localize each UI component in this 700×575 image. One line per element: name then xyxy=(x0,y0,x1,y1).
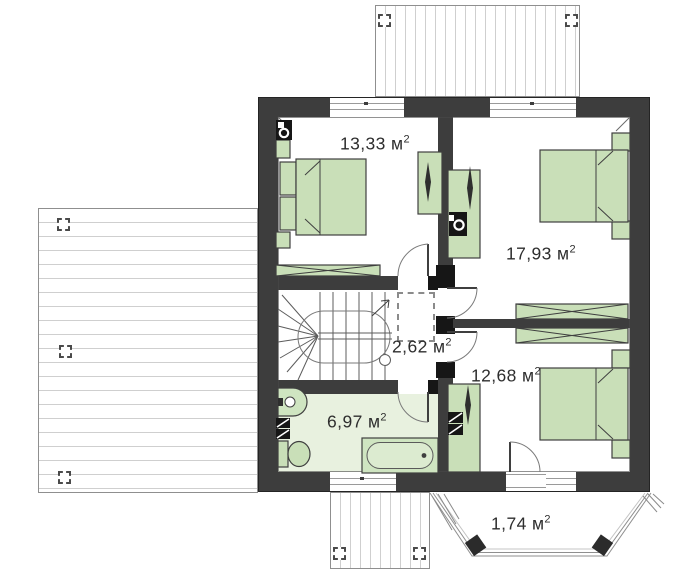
door-bedroom2 xyxy=(447,288,477,318)
area-label-bedroom-right: 17,93 м2 xyxy=(506,244,576,265)
sink-icon xyxy=(278,388,307,416)
chimney-icon xyxy=(449,212,467,236)
door-bathroom xyxy=(398,392,428,422)
bedroom3-furniture xyxy=(448,328,630,472)
toilet-icon xyxy=(278,441,310,467)
area-label-bay-balcony: 1,74 м2 xyxy=(491,514,551,535)
bed xyxy=(540,368,628,440)
bed xyxy=(296,159,366,235)
radiator-icon xyxy=(276,418,290,439)
floor-plan: 13,33 м2 17,93 м2 2,62 м2 12,68 м2 6,97 … xyxy=(0,0,700,575)
area-label-bedroom-bottom-right: 12,68 м2 xyxy=(471,366,541,387)
chimney-icon xyxy=(276,120,292,140)
bed xyxy=(540,150,628,222)
door-bedroom1 xyxy=(398,244,428,276)
door-exterior-bottom xyxy=(510,442,540,472)
area-label-bedroom-top-left: 13,33 м2 xyxy=(340,134,410,155)
area-label-bathroom: 6,97 м2 xyxy=(327,412,387,433)
wardrobe-icon xyxy=(516,328,628,343)
wardrobe-icon xyxy=(276,265,380,276)
stair-post-icon xyxy=(380,355,391,366)
stair-direction-arrow-icon xyxy=(372,300,389,316)
staircase xyxy=(278,292,392,380)
area-label-hall: 2,62 м2 xyxy=(392,337,452,358)
wardrobe-icon xyxy=(516,304,628,319)
plan-vector-layer xyxy=(0,0,700,575)
bathtub-icon xyxy=(362,438,438,473)
bedroom2-furniture xyxy=(448,133,630,319)
bedroom1-furniture xyxy=(276,140,442,276)
